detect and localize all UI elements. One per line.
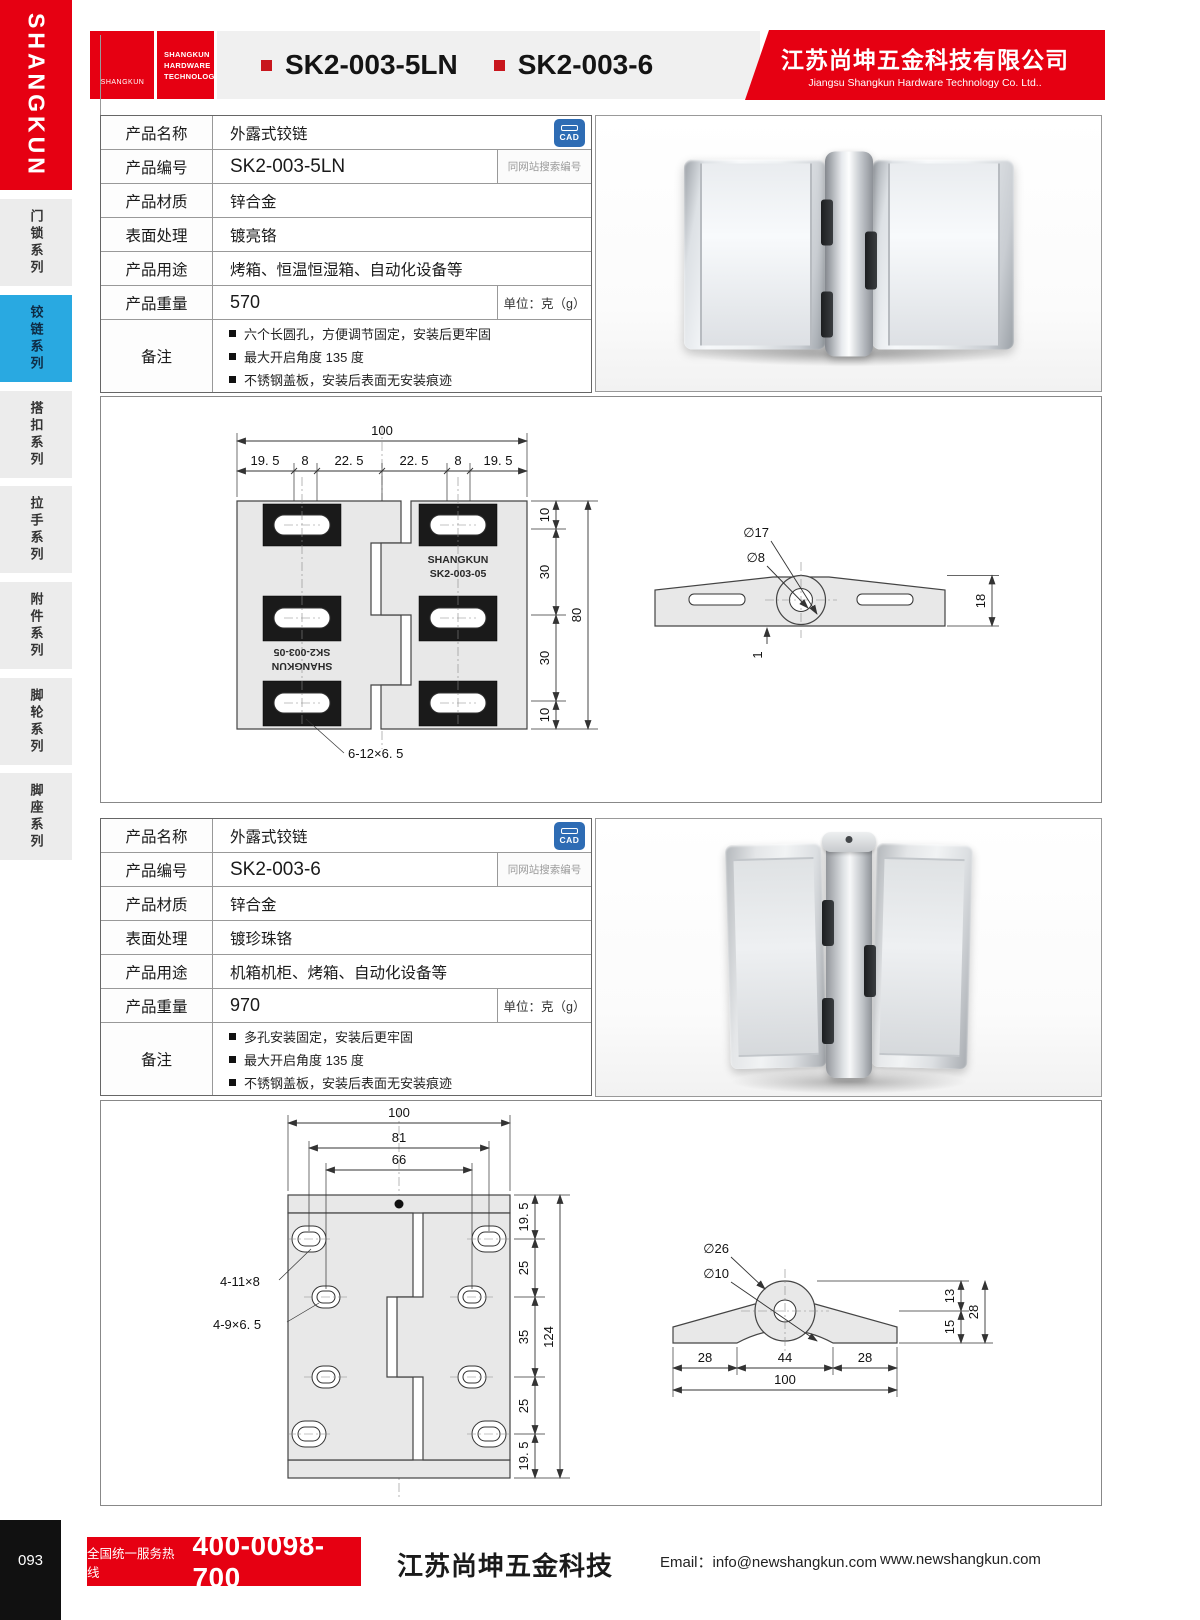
- product-code-2: SK2-003-6: [494, 49, 653, 81]
- hinge-leaf: [684, 159, 826, 349]
- sidebar-item-label: 附件系列: [27, 592, 46, 660]
- footer-website[interactable]: www.newshangkun.com: [880, 1551, 1041, 1568]
- table-row: 产品用途 机箱机柜、烤箱、自动化设备等: [101, 955, 591, 989]
- square-bullet-icon: [229, 1033, 236, 1040]
- hinge-leaf: [872, 159, 1014, 349]
- row-value: SK2-003-5LN: [213, 150, 497, 183]
- knuckle-gap: [822, 900, 834, 946]
- search-code-note: 同网站搜索编号: [497, 853, 591, 886]
- weight-unit: 单位：克（g）: [497, 989, 591, 1022]
- footer-company-name: 江苏尚坤五金科技: [397, 1546, 613, 1583]
- row-label: 产品材质: [101, 887, 213, 920]
- remark-item: 六个长圆孔，方便调节固定，安装后更牢固: [229, 324, 591, 343]
- row-value: 570: [213, 286, 497, 319]
- hole-note-label: 4-9×6. 5: [213, 1317, 261, 1332]
- dim-label: 100: [774, 1372, 796, 1387]
- row-label: 表面处理: [101, 218, 213, 251]
- knuckle-gap: [821, 291, 833, 337]
- hinge-knuckle: [826, 840, 872, 1078]
- email-label: Email：: [660, 1554, 713, 1571]
- cad-arrow-icon: [561, 125, 578, 131]
- sidebar-item-hinge[interactable]: 铰链系列: [0, 295, 72, 382]
- square-bullet-icon: [229, 1079, 236, 1086]
- row-label: 产品用途: [101, 955, 213, 988]
- table-row: 备注 多孔安装固定，安装后更牢固 最大开启角度 135 度 不锈钢盖板，安装后表…: [101, 1023, 591, 1095]
- table-row: 产品材质 锌合金: [101, 887, 591, 921]
- dim-label: 19. 5: [251, 453, 280, 468]
- email-address[interactable]: info@newshangkun.com: [713, 1554, 878, 1571]
- dim-label: 10: [537, 508, 552, 522]
- sidebar-logo: SHANGKUN: [0, 0, 72, 190]
- table-row: 产品材质 锌合金: [101, 184, 591, 218]
- table-row: 产品编号 SK2-003-6 同网站搜索编号: [101, 853, 591, 887]
- dim-label: 124: [541, 1326, 556, 1348]
- sidebar-item-door-lock[interactable]: 门锁系列: [0, 199, 72, 286]
- drawing-brand-text: SK2-003-05: [274, 646, 331, 658]
- page-number: 093: [18, 1552, 43, 1620]
- table-row: 产品用途 烤箱、恒温恒湿箱、自动化设备等: [101, 252, 591, 286]
- dim-label: 8: [301, 453, 308, 468]
- knuckle-gap: [821, 199, 833, 245]
- dim-label: ∅17: [743, 525, 769, 540]
- dim-label: 30: [537, 651, 552, 665]
- footer-email: Email：info@newshangkun.com: [660, 1551, 877, 1572]
- dim-label: 19. 5: [516, 1203, 531, 1232]
- product-photo-box-1: [595, 115, 1102, 392]
- dim-label: 28: [858, 1350, 872, 1365]
- product-code-text: SK2-003-5LN: [285, 49, 458, 81]
- product-photo-box-2: [595, 818, 1102, 1097]
- cad-arrow-icon: [561, 828, 578, 834]
- sidebar-item-caster[interactable]: 脚轮系列: [0, 678, 72, 765]
- table-row: 备注 六个长圆孔，方便调节固定，安装后更牢固 最大开启角度 135 度 不锈钢盖…: [101, 320, 591, 392]
- dim-label: 81: [392, 1130, 406, 1145]
- table-row: 产品名称 外露式铰链 CAD: [101, 819, 591, 853]
- remark-item: 不锈钢盖板，安装后表面无安装痕迹: [229, 370, 591, 389]
- knuckle-gap: [864, 945, 876, 997]
- row-value: 锌合金: [213, 184, 591, 217]
- square-bullet-icon: [229, 1056, 236, 1063]
- row-label: 产品名称: [101, 116, 213, 149]
- dim-label: 10: [537, 708, 552, 722]
- row-label: 产品重量: [101, 286, 213, 319]
- dim-label: 30: [537, 565, 552, 579]
- row-value: 锌合金: [213, 887, 591, 920]
- remarks-list: 多孔安装固定，安装后更牢固 最大开启角度 135 度 不锈钢盖板，安装后表面无安…: [213, 1023, 591, 1095]
- dim-label: 19. 5: [484, 453, 513, 468]
- header-code-band: SK2-003-5LN SK2-003-6: [217, 31, 760, 99]
- row-value: SK2-003-6: [213, 853, 497, 886]
- dim-label: 22. 5: [335, 453, 364, 468]
- row-label: 产品名称: [101, 819, 213, 852]
- row-label: 备注: [101, 320, 213, 392]
- dim-label: 13: [942, 1289, 957, 1303]
- knuckle-gap: [822, 998, 834, 1044]
- table-row: 产品重量 570 单位：克（g）: [101, 286, 591, 320]
- row-label: 表面处理: [101, 921, 213, 954]
- row-label: 产品用途: [101, 252, 213, 285]
- hole-note-label: 4-11×8: [220, 1274, 260, 1289]
- bullet-icon: [261, 60, 272, 71]
- dim-label: 100: [388, 1105, 410, 1120]
- sidebar-item-label: 脚座系列: [27, 783, 46, 851]
- sidebar-logo-text: SHANGKUN: [23, 13, 50, 178]
- hinge-knuckle: [825, 151, 873, 356]
- row-label: 产品材质: [101, 184, 213, 217]
- dim-label: 44: [778, 1350, 792, 1365]
- sidebar-item-label: 脚轮系列: [27, 688, 46, 756]
- row-label: 产品编号: [101, 853, 213, 886]
- hinge-photo-2: [724, 832, 974, 1084]
- wordmark-line: SHANGKUN: [164, 49, 214, 60]
- hinge-photo-1: [684, 151, 1014, 356]
- table-row: 产品编号 SK2-003-5LN 同网站搜索编号: [101, 150, 591, 184]
- remark-item: 最大开启角度 135 度: [229, 347, 591, 366]
- dim-label: 80: [569, 608, 584, 622]
- technical-drawing-1: SHANGKUN SK2-003-05 SHANGKUN SK2-003-05 …: [101, 397, 1101, 802]
- knuckle-gap: [865, 231, 877, 289]
- weight-unit: 单位：克（g）: [497, 286, 591, 319]
- row-label: 产品重量: [101, 989, 213, 1022]
- sk-logo-wordmark: SHANGKUN HARDWARE TECHNOLOGY: [157, 31, 214, 99]
- search-code-note: 同网站搜索编号: [497, 150, 591, 183]
- table-row: 表面处理 镀珍珠铬: [101, 921, 591, 955]
- drawing-brand-text: SK2-003-05: [430, 568, 487, 580]
- sidebar-item-label: 搭扣系列: [27, 401, 46, 469]
- square-bullet-icon: [229, 376, 236, 383]
- dim-label: 1: [750, 651, 765, 658]
- hinge-pin-cap: [822, 832, 876, 852]
- sk-logo-text: SK: [102, 1, 142, 33]
- dim-label: 15: [942, 1320, 957, 1334]
- dim-label: 28: [698, 1350, 712, 1365]
- company-name-cn: 江苏尚坤五金科技有限公司: [781, 41, 1069, 75]
- wordmark-line: HARDWARE: [164, 60, 214, 71]
- dim-label: 28: [966, 1305, 981, 1319]
- row-label: 备注: [101, 1023, 213, 1095]
- sidebar-item-label: 拉手系列: [27, 496, 46, 564]
- row-value: 机箱机柜、烤箱、自动化设备等: [213, 955, 591, 988]
- page-number-box: 093: [0, 1520, 61, 1620]
- sidebar-item-handle[interactable]: 拉手系列: [0, 486, 72, 573]
- dim-label: ∅8: [746, 550, 765, 565]
- hinge-leaf: [725, 842, 827, 1068]
- wordmark-line: TECHNOLOGY: [164, 71, 214, 82]
- hinge-leaf: [871, 842, 973, 1068]
- row-value: 烤箱、恒温恒湿箱、自动化设备等: [213, 252, 591, 285]
- row-value: 镀珍珠铬: [213, 921, 591, 954]
- technical-drawing-box-2: 4-11×8 4-9×6. 5 100 81 66: [100, 1100, 1102, 1506]
- row-value: 镀亮铬: [213, 218, 591, 251]
- hotline-banner: 全国统一服务热线 400-0098-700: [87, 1537, 361, 1586]
- row-value: 970: [213, 989, 497, 1022]
- bullet-icon: [494, 60, 505, 71]
- company-name-en: Jiangsu Shangkun Hardware Technology Co.…: [808, 77, 1041, 89]
- product-code-text: SK2-003-6: [518, 49, 653, 81]
- row-value: 外露式铰链 CAD: [213, 819, 591, 852]
- sidebar-item-accessory[interactable]: 附件系列: [0, 582, 72, 669]
- dim-label: 19. 5: [516, 1442, 531, 1471]
- dim-label: 8: [454, 453, 461, 468]
- technical-drawing-box-1: SHANGKUN SK2-003-05 SHANGKUN SK2-003-05 …: [100, 396, 1102, 803]
- sk-logo: SK SHANGKUN: [90, 31, 154, 99]
- square-bullet-icon: [229, 353, 236, 360]
- dim-label: 22. 5: [400, 453, 429, 468]
- hole-note-label: 6-12×6. 5: [348, 746, 403, 761]
- table-row: 表面处理 镀亮铬: [101, 218, 591, 252]
- remark-item: 多孔安装固定，安装后更牢固: [229, 1027, 591, 1046]
- sidebar-item-hasp[interactable]: 搭扣系列: [0, 391, 72, 478]
- sidebar-item-label: 门锁系列: [27, 209, 46, 277]
- sidebar-item-label: 铰链系列: [27, 305, 46, 373]
- square-bullet-icon: [229, 330, 236, 337]
- remark-item: 不锈钢盖板，安装后表面无安装痕迹: [229, 1073, 591, 1092]
- spec-table-product-2: 产品名称 外露式铰链 CAD 产品编号 SK2-003-6 同网站搜索编号 产品…: [100, 818, 592, 1096]
- technical-drawing-2: 4-11×8 4-9×6. 5 100 81 66: [101, 1101, 1101, 1505]
- product-code-1: SK2-003-5LN: [261, 49, 458, 81]
- hotline-label: 全国统一服务热线: [87, 1543, 180, 1581]
- dim-label: 18: [973, 594, 988, 608]
- remark-item: 最大开启角度 135 度: [229, 1050, 591, 1069]
- company-banner: 江苏尚坤五金科技有限公司 Jiangsu Shangkun Hardware T…: [745, 30, 1105, 100]
- cad-download-icon[interactable]: CAD: [554, 822, 585, 850]
- drawing-brand-text: SHANGKUN: [428, 554, 489, 566]
- dim-label: 66: [392, 1152, 406, 1167]
- remarks-list: 六个长圆孔，方便调节固定，安装后更牢固 最大开启角度 135 度 不锈钢盖板，安…: [213, 320, 591, 392]
- drawing-brand-text: SHANGKUN: [272, 660, 333, 672]
- dim-label: 25: [516, 1261, 531, 1275]
- cad-download-icon[interactable]: CAD: [554, 119, 585, 147]
- dim-label: 100: [371, 423, 393, 438]
- sidebar-item-foot[interactable]: 脚座系列: [0, 773, 72, 860]
- hotline-number: 400-0098-700: [192, 1530, 361, 1594]
- dim-label: 25: [516, 1399, 531, 1413]
- dim-label: ∅26: [703, 1241, 729, 1256]
- dim-label: ∅10: [703, 1266, 729, 1281]
- row-value: 外露式铰链 CAD: [213, 116, 591, 149]
- catalog-page: SHANGKUN 门锁系列 铰链系列 搭扣系列 拉手系列 附件系列 脚轮系列 脚…: [0, 0, 1200, 1620]
- table-row: 产品重量 970 单位：克（g）: [101, 989, 591, 1023]
- spec-table-product-1: 产品名称 外露式铰链 CAD 产品编号 SK2-003-5LN 同网站搜索编号 …: [100, 115, 592, 393]
- table-row: 产品名称 外露式铰链 CAD: [101, 116, 591, 150]
- dim-label: 35: [516, 1330, 531, 1344]
- row-label: 产品编号: [101, 150, 213, 183]
